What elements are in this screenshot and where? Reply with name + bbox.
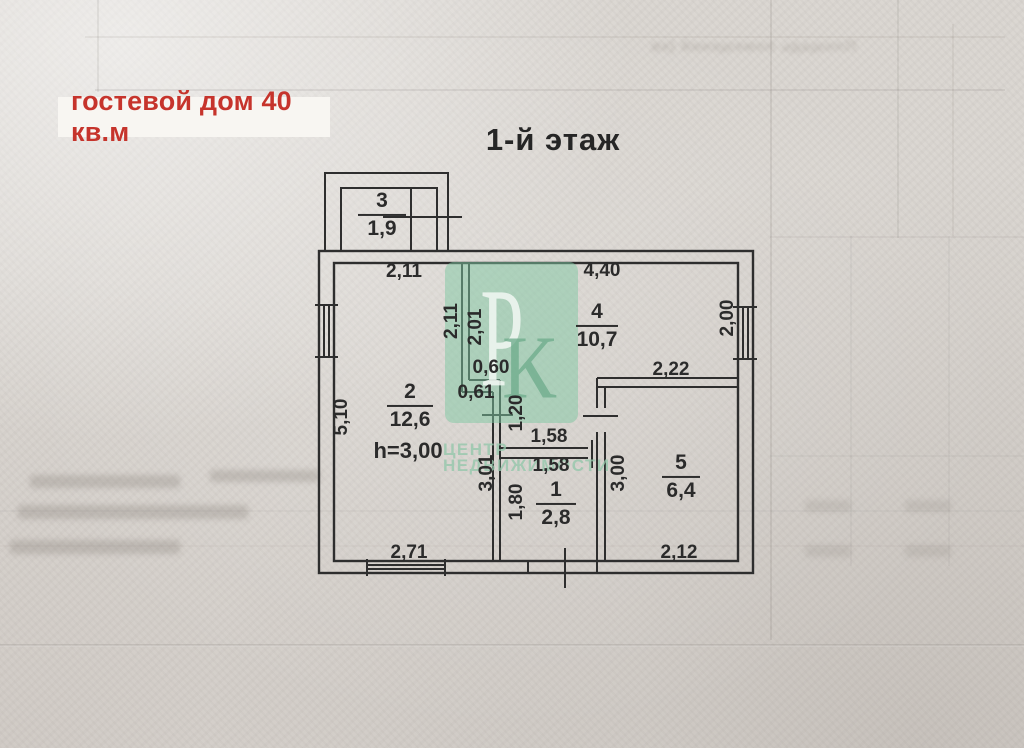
room2-label: 2 12,6 <box>387 381 433 431</box>
watermark-text-line2: НЕДВИЖИМОСТИ <box>443 456 611 476</box>
room2-height-note: h=3,00 <box>373 438 442 464</box>
entrance-opening <box>528 548 597 588</box>
room1-label: 1 2,8 <box>536 479 576 529</box>
dim-room1-left: 1,80 <box>506 484 528 521</box>
room4-number: 4 <box>576 301 618 323</box>
room4-label: 4 10,7 <box>576 301 618 351</box>
room4-fraction-bar <box>576 325 618 327</box>
dim-hall-door: 1,20 <box>506 395 528 432</box>
room1-area: 2,8 <box>536 507 576 529</box>
room5-label: 5 6,4 <box>662 452 700 502</box>
room5-fraction-bar <box>662 476 700 478</box>
room5-number: 5 <box>662 452 700 474</box>
dim-step-top: 0,60 <box>473 357 510 379</box>
room2-number: 2 <box>387 381 433 403</box>
dim-hall-depth: 3,01 <box>476 455 498 492</box>
room1-fraction-bar <box>536 503 576 505</box>
dim-room5-left: 3,00 <box>608 455 630 492</box>
dim-room5-top: 2,22 <box>653 359 690 381</box>
dim-hall-left: 2,11 <box>441 303 463 339</box>
dim-room2-top: 2,11 <box>386 261 422 283</box>
room3-label: 3 1,9 <box>358 190 406 240</box>
dim-left-wall: 5,10 <box>331 399 353 436</box>
dim-room1-top-outer: 1,58 <box>531 426 568 448</box>
room5-area: 6,4 <box>662 480 700 502</box>
dim-room1-top-inner: 1,58 <box>533 455 570 477</box>
room3-number: 3 <box>358 190 406 212</box>
dim-hall-right: 2,01 <box>465 309 487 346</box>
room2-fraction-bar <box>387 405 433 407</box>
dim-room4-top: 4,40 <box>584 260 621 282</box>
room2-area: 12,6 <box>387 409 433 431</box>
dim-room2-bottom: 2,71 <box>391 542 428 564</box>
room4-area: 10,7 <box>576 329 618 351</box>
dim-right-wall: 2,00 <box>717 300 739 337</box>
room3-fraction-bar <box>358 214 406 216</box>
room3-area: 1,9 <box>358 218 406 240</box>
dim-step-bottom: 0,61 <box>458 382 495 404</box>
dim-room5-bottom: 2,12 <box>661 542 698 564</box>
scanned-floor-plan-page: Площадь помещений (кв гостевой дом 40 кв… <box>0 0 1024 748</box>
room1-number: 1 <box>536 479 576 501</box>
